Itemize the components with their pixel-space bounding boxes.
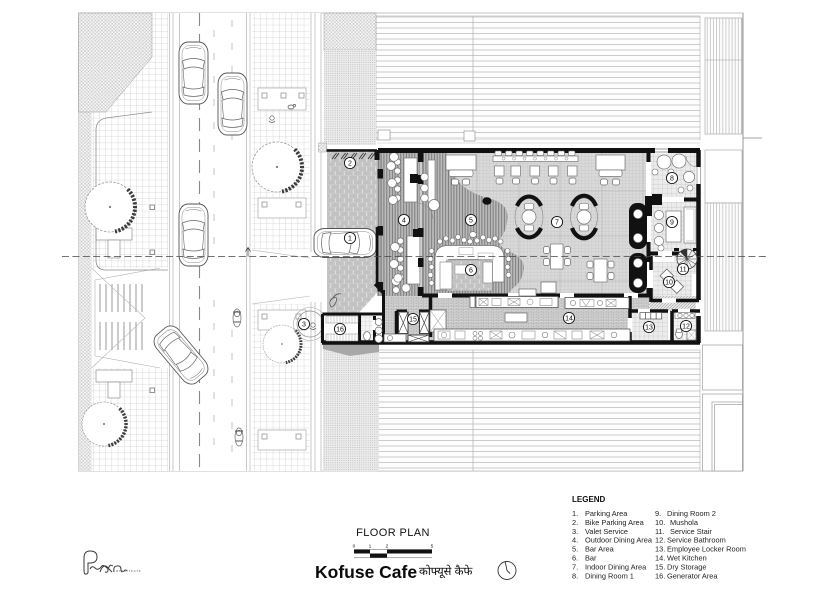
svg-text:Employee Locker Room: Employee Locker Room [667,545,746,554]
svg-text:11.: 11. [655,527,665,536]
svg-text:13.: 13. [655,545,665,554]
svg-text:Wet Kitchen: Wet Kitchen [667,554,707,563]
svg-text:15: 15 [409,317,417,324]
svg-text:2.: 2. [572,518,578,527]
svg-text:8: 8 [670,176,674,183]
svg-text:Outdoor Dining Area: Outdoor Dining Area [585,536,653,545]
svg-text:Bar: Bar [585,554,597,563]
svg-text:7.: 7. [572,562,578,571]
svg-text:Indoor Dining Area: Indoor Dining Area [585,562,647,571]
svg-text:कोफ्यूसे कैफे: कोफ्यूसे कैफे [419,564,473,579]
svg-text:Bike Parking Area: Bike Parking Area [585,518,645,527]
svg-text:4: 4 [402,218,406,225]
svg-text:9.: 9. [655,509,661,518]
svg-text:3.: 3. [572,527,578,536]
svg-text:3: 3 [302,322,306,329]
svg-text:11: 11 [679,267,686,274]
svg-text:Mushola: Mushola [670,518,699,527]
svg-text:14.: 14. [655,554,665,563]
svg-text:2: 2 [348,161,352,168]
svg-text:Dining Room 1: Dining Room 1 [585,571,634,580]
svg-text:1: 1 [369,544,372,550]
svg-text:8.: 8. [572,571,578,580]
svg-text:FLOOR PLAN: FLOOR PLAN [356,527,430,539]
svg-text:2: 2 [386,544,389,550]
svg-text:1: 1 [348,236,352,243]
svg-text:Generator Area: Generator Area [667,571,718,580]
svg-text:a r c h i t e c t s: a r c h i t e c t s [116,569,141,573]
svg-text:12: 12 [682,324,690,331]
svg-text:13: 13 [645,325,653,332]
svg-text:5: 5 [431,544,434,550]
svg-text:10: 10 [665,280,673,287]
svg-text:6: 6 [469,268,473,275]
svg-text:5.: 5. [572,545,578,554]
svg-text:4.: 4. [572,536,578,545]
svg-text:10.: 10. [655,518,665,527]
svg-text:Dry Storage: Dry Storage [667,562,706,571]
svg-text:6.: 6. [572,554,578,563]
svg-text:Dining Room 2: Dining Room 2 [667,509,716,518]
svg-text:Valet Service: Valet Service [585,527,628,536]
svg-text:9: 9 [670,220,674,227]
svg-text:Service Stair: Service Stair [670,527,712,536]
svg-text:16: 16 [336,327,344,334]
svg-text:7: 7 [555,220,559,227]
svg-text:Parking Area: Parking Area [585,509,628,518]
svg-text:12.: 12. [655,536,665,545]
svg-text:Bar Area: Bar Area [585,545,615,554]
svg-text:Service Bathroom: Service Bathroom [667,536,726,545]
svg-text:Kofuse Cafe: Kofuse Cafe [315,562,417,582]
svg-text:15.: 15. [655,562,665,571]
svg-text:1.: 1. [572,509,578,518]
svg-text:14: 14 [565,316,573,323]
svg-text:16.: 16. [655,571,665,580]
svg-text:0: 0 [353,544,356,550]
svg-text:5: 5 [469,218,473,225]
svg-text:LEGEND: LEGEND [572,495,606,504]
